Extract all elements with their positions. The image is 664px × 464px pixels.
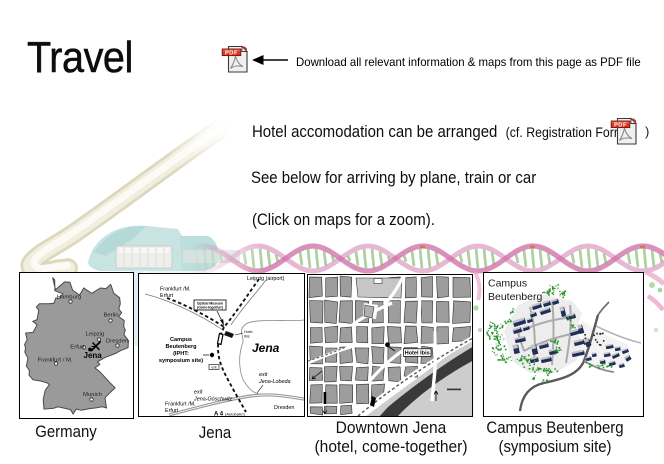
svg-text:Dresden: Dresden xyxy=(106,339,128,345)
svg-text:A 4: A 4 xyxy=(214,412,224,417)
svg-text:exit: exit xyxy=(212,366,217,370)
svg-text:Jena-Lobeda: Jena-Lobeda xyxy=(258,379,290,385)
svg-text:Frankfurt / M.: Frankfurt / M. xyxy=(37,358,72,364)
svg-text:(come-together): (come-together) xyxy=(197,306,223,310)
svg-text:Hamburg: Hamburg xyxy=(57,295,81,301)
svg-text:(Autobahn): (Autobahn) xyxy=(225,412,245,417)
svg-text:exit: exit xyxy=(194,390,203,396)
svg-text:Campus: Campus xyxy=(488,278,527,290)
svg-text:Leipzig: Leipzig xyxy=(86,332,105,338)
svg-text:Leipzig (airport): Leipzig (airport) xyxy=(247,276,285,282)
svg-text:symposium site): symposium site) xyxy=(159,358,203,364)
svg-text:PDF: PDF xyxy=(614,122,627,128)
svg-text:Frankfurt /M.: Frankfurt /M. xyxy=(165,402,196,408)
svg-text:Beutenberg: Beutenberg xyxy=(165,344,197,350)
svg-text:Jena: Jena xyxy=(84,351,103,360)
svg-text:(IPHT:: (IPHT: xyxy=(173,351,189,357)
svg-text:exit: exit xyxy=(259,372,268,378)
svg-text:Erfurt: Erfurt xyxy=(160,293,174,299)
svg-text:Erfurt: Erfurt xyxy=(70,345,85,351)
svg-text:Frankfurt /M.: Frankfurt /M. xyxy=(160,287,191,293)
svg-text:PDF: PDF xyxy=(225,51,238,57)
svg-text:Campus: Campus xyxy=(170,337,192,343)
svg-text:Jena-Göschwitz: Jena-Göschwitz xyxy=(193,397,233,403)
svg-text:Dresden: Dresden xyxy=(274,405,294,411)
svg-text:Erfurt: Erfurt xyxy=(165,408,179,414)
svg-text:Munich: Munich xyxy=(83,392,102,398)
svg-text:Hotel Ibis: Hotel Ibis xyxy=(405,351,430,357)
svg-text:Beutenberg: Beutenberg xyxy=(488,291,542,303)
svg-text:Hotel: Hotel xyxy=(244,330,253,334)
svg-text:Ibis: Ibis xyxy=(244,335,250,339)
svg-text:Berlin: Berlin xyxy=(103,313,118,319)
svg-text:Jena: Jena xyxy=(252,341,280,355)
